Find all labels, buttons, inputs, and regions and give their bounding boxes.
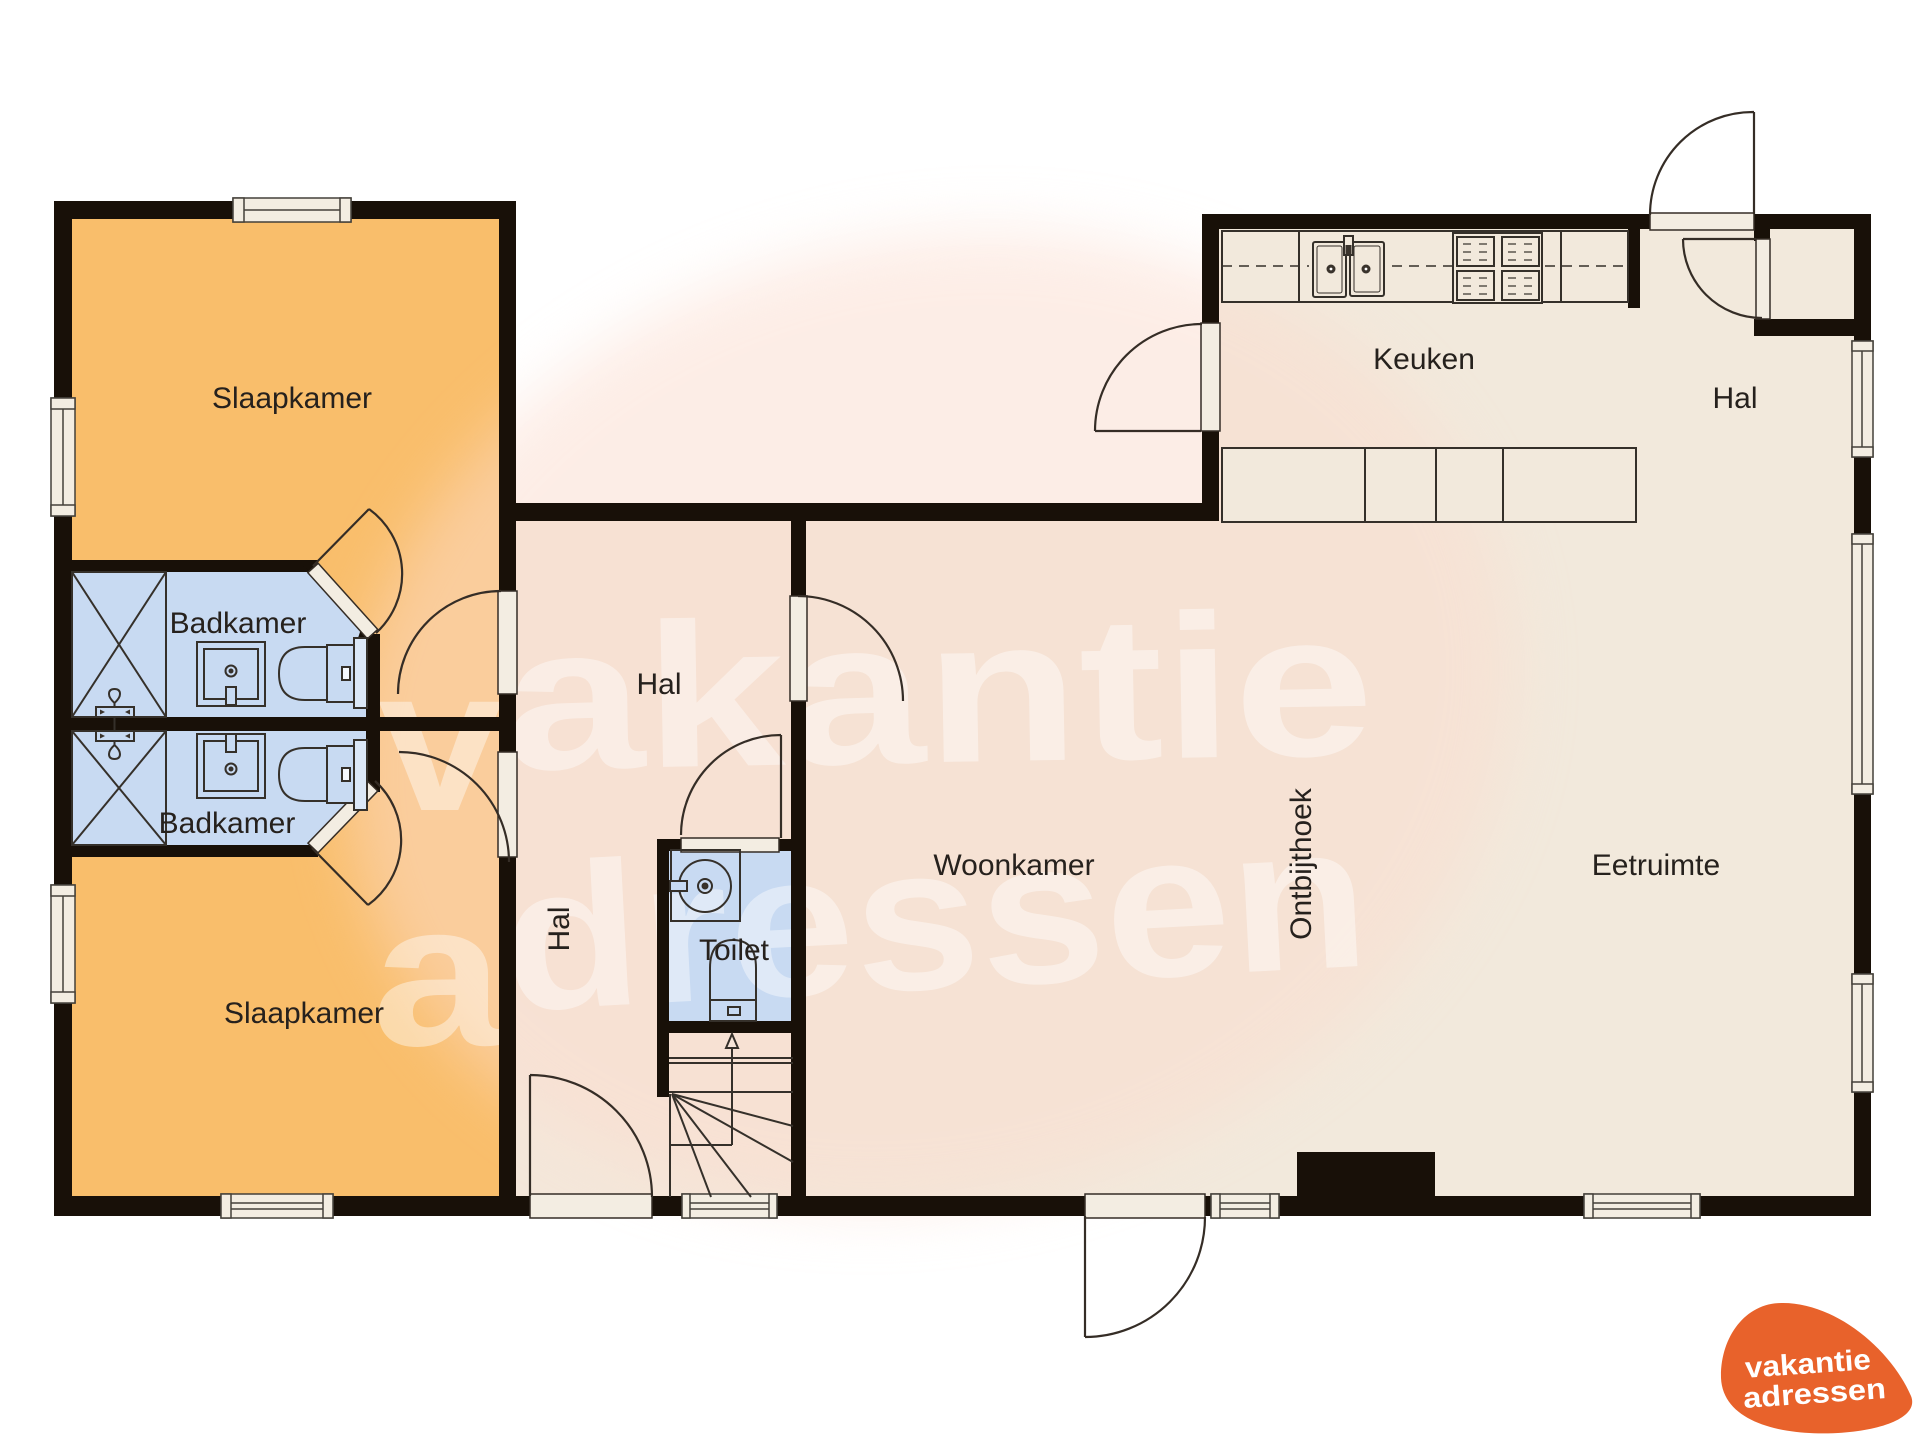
svg-text:Badkamer: Badkamer xyxy=(170,607,307,640)
svg-text:v: v xyxy=(378,625,503,854)
svg-text:Badkamer: Badkamer xyxy=(159,807,296,840)
svg-text:Ontbijthoek: Ontbijthoek xyxy=(1285,787,1318,940)
svg-text:Toilet: Toilet xyxy=(699,934,770,967)
svg-text:Slaapkamer: Slaapkamer xyxy=(212,382,372,415)
svg-text:dressen: dressen xyxy=(497,781,1374,1055)
svg-text:Hal: Hal xyxy=(636,668,681,701)
svg-text:akantie: akantie xyxy=(502,569,1376,813)
svg-text:Woonkamer: Woonkamer xyxy=(933,849,1094,882)
svg-text:Hal: Hal xyxy=(1712,382,1757,415)
svg-text:Hal: Hal xyxy=(543,906,576,951)
svg-text:Keuken: Keuken xyxy=(1373,343,1475,376)
svg-text:Slaapkamer: Slaapkamer xyxy=(224,997,384,1030)
svg-text:Eetruimte: Eetruimte xyxy=(1592,849,1720,882)
svg-text:a: a xyxy=(372,860,506,1089)
